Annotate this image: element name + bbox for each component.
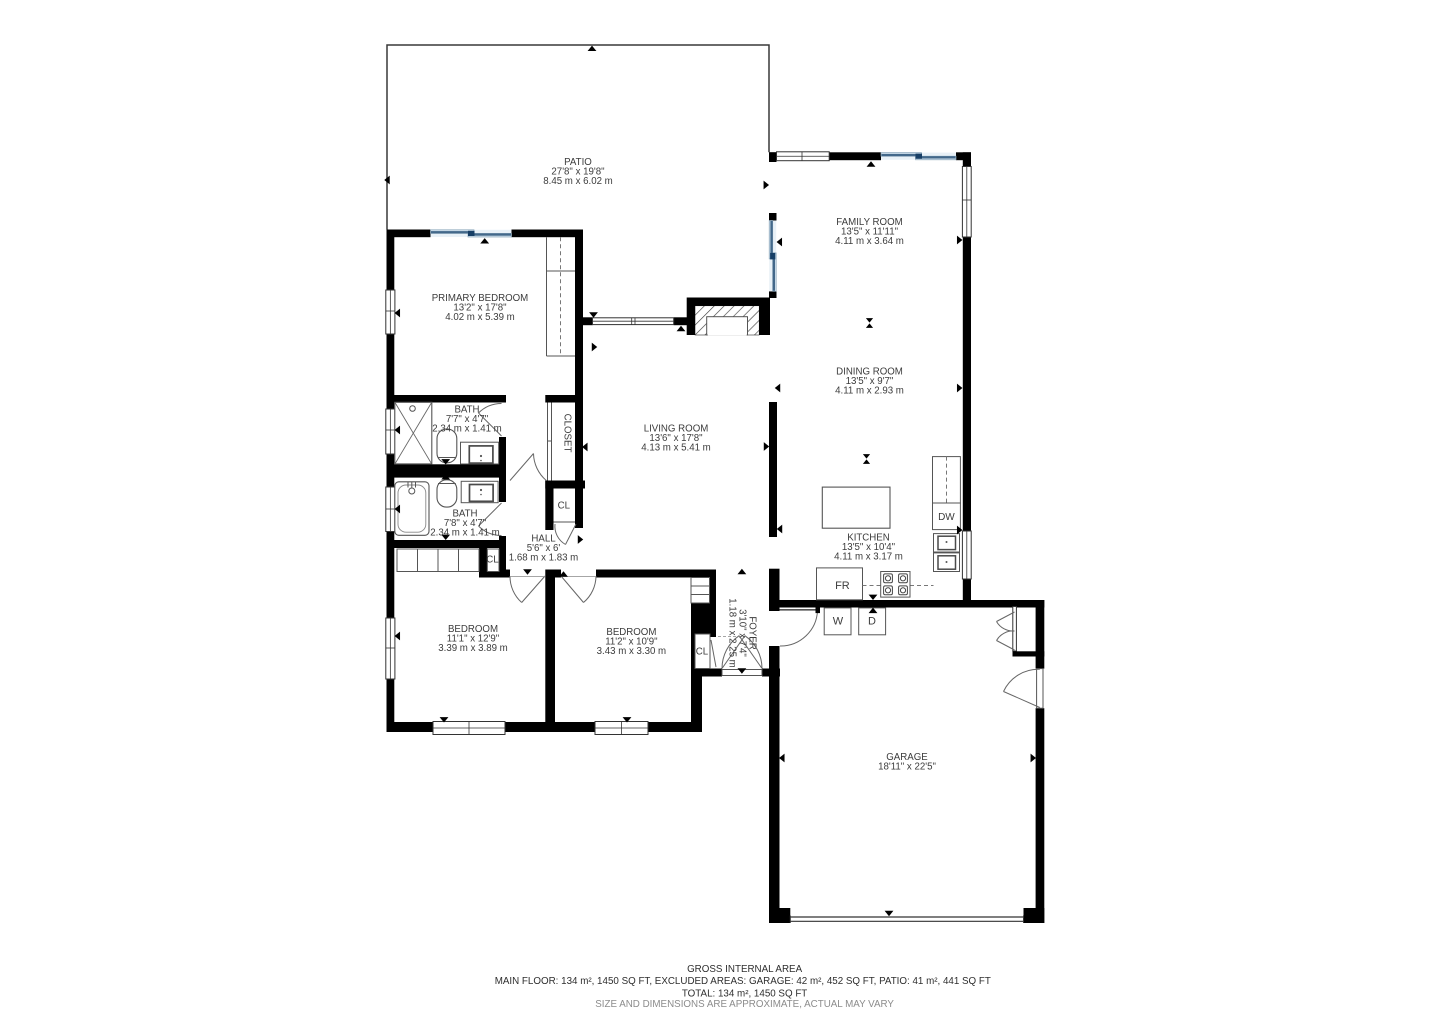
svg-text:DW: DW [938,512,955,523]
svg-text:CL: CL [696,647,709,658]
svg-text:D: D [868,616,876,628]
svg-text:CL: CL [486,555,499,566]
svg-text:MAIN FLOOR: 134 m², 1450 SQ FT: MAIN FLOOR: 134 m², 1450 SQ FT, EXCLUDED… [495,976,991,987]
svg-text:2.34 m x 1.41 m: 2.34 m x 1.41 m [430,528,499,539]
svg-text:SIZE AND DIMENSIONS ARE APPROX: SIZE AND DIMENSIONS ARE APPROXIMATE, ACT… [595,999,894,1010]
svg-text:W: W [833,616,844,628]
svg-text:GROSS INTERNAL AREA: GROSS INTERNAL AREA [687,964,803,975]
svg-text:4.11 m x 3.64 m: 4.11 m x 3.64 m [835,236,904,247]
svg-text:18'11" x 22'5": 18'11" x 22'5" [878,762,936,773]
svg-text:CL: CL [558,501,571,512]
svg-text:CLOSET: CLOSET [562,414,573,453]
svg-text:4.13 m x 5.41 m: 4.13 m x 5.41 m [641,443,710,454]
svg-text:4.02 m x 5.39 m: 4.02 m x 5.39 m [445,312,514,323]
svg-text:3.39 m x 3.89 m: 3.39 m x 3.89 m [438,643,507,654]
svg-text:FR: FR [835,580,850,592]
svg-text:1.68 m x 1.83 m: 1.68 m x 1.83 m [509,553,578,564]
svg-text:1.18 m x 2.25 m: 1.18 m x 2.25 m [727,598,738,667]
svg-text:4.11 m x 2.93 m: 4.11 m x 2.93 m [835,386,904,397]
svg-text:TOTAL: 134 m², 1450 SQ FT: TOTAL: 134 m², 1450 SQ FT [682,988,807,999]
svg-text:3.43 m x 3.30 m: 3.43 m x 3.30 m [597,646,666,657]
svg-text:4.11 m x 3.17 m: 4.11 m x 3.17 m [834,552,903,563]
svg-text:8.45 m x 6.02 m: 8.45 m x 6.02 m [543,176,612,187]
svg-text:2.34 m x 1.41 m: 2.34 m x 1.41 m [432,424,501,435]
